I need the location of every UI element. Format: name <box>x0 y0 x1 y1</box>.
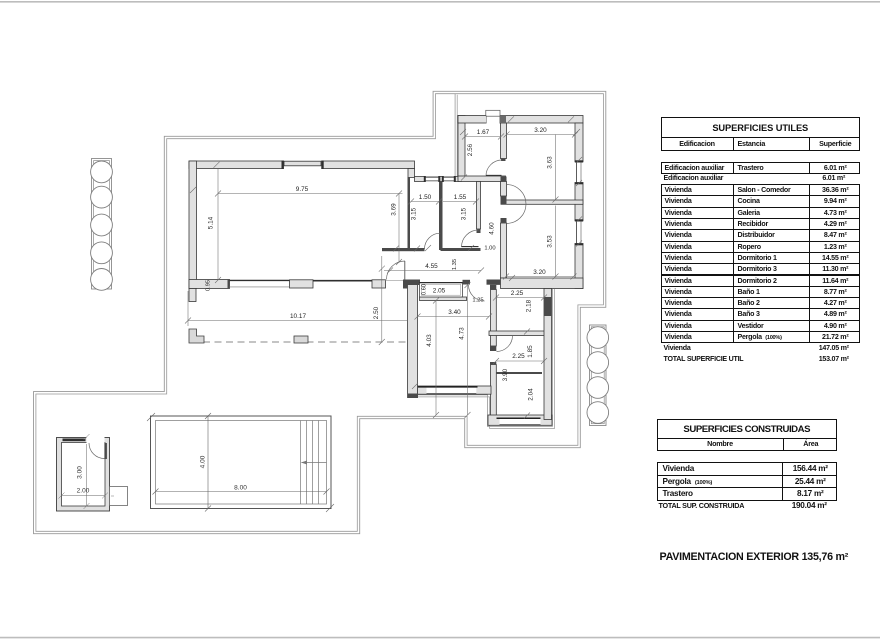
svg-text:2.18: 2.18 <box>526 299 533 312</box>
svg-text:3.90: 3.90 <box>502 368 509 381</box>
svg-text:4.60: 4.60 <box>489 222 496 235</box>
svg-text:3.63: 3.63 <box>547 156 554 169</box>
svg-text:2.25: 2.25 <box>512 353 525 360</box>
svg-text:2.56: 2.56 <box>467 143 474 156</box>
svg-text:1.67: 1.67 <box>477 129 490 136</box>
svg-text:8.00: 8.00 <box>234 485 247 492</box>
svg-text:1.00: 1.00 <box>484 246 495 252</box>
svg-text:9.75: 9.75 <box>296 186 309 193</box>
svg-text:2.25: 2.25 <box>511 290 524 297</box>
svg-text:5.14: 5.14 <box>208 216 215 229</box>
svg-text:3.20: 3.20 <box>533 269 546 276</box>
svg-text:1.50: 1.50 <box>419 194 432 201</box>
svg-text:2.00: 2.00 <box>77 488 90 495</box>
svg-text:2.50: 2.50 <box>373 306 380 319</box>
svg-text:1.85: 1.85 <box>527 345 534 358</box>
svg-text:2.04: 2.04 <box>528 388 535 401</box>
svg-text:3.15: 3.15 <box>411 207 418 220</box>
svg-text:3.40: 3.40 <box>448 309 461 316</box>
svg-text:0.95: 0.95 <box>206 280 212 291</box>
svg-text:4.55: 4.55 <box>425 263 438 270</box>
svg-text:3.00: 3.00 <box>77 466 84 479</box>
svg-text:1.25: 1.25 <box>472 298 483 304</box>
svg-text:3.15: 3.15 <box>461 207 468 220</box>
svg-text:3.53: 3.53 <box>547 235 554 248</box>
svg-text:3.69: 3.69 <box>391 203 398 216</box>
svg-text:0.60: 0.60 <box>422 284 428 295</box>
svg-text:4.00: 4.00 <box>200 455 207 468</box>
svg-text:3.20: 3.20 <box>534 127 547 134</box>
svg-text:1.55: 1.55 <box>454 194 467 201</box>
svg-text:4.03: 4.03 <box>426 334 433 347</box>
svg-text:2.05: 2.05 <box>433 288 446 295</box>
svg-text:1.35: 1.35 <box>452 259 458 270</box>
svg-text:10.17: 10.17 <box>290 313 306 320</box>
svg-text:4.73: 4.73 <box>459 327 466 340</box>
